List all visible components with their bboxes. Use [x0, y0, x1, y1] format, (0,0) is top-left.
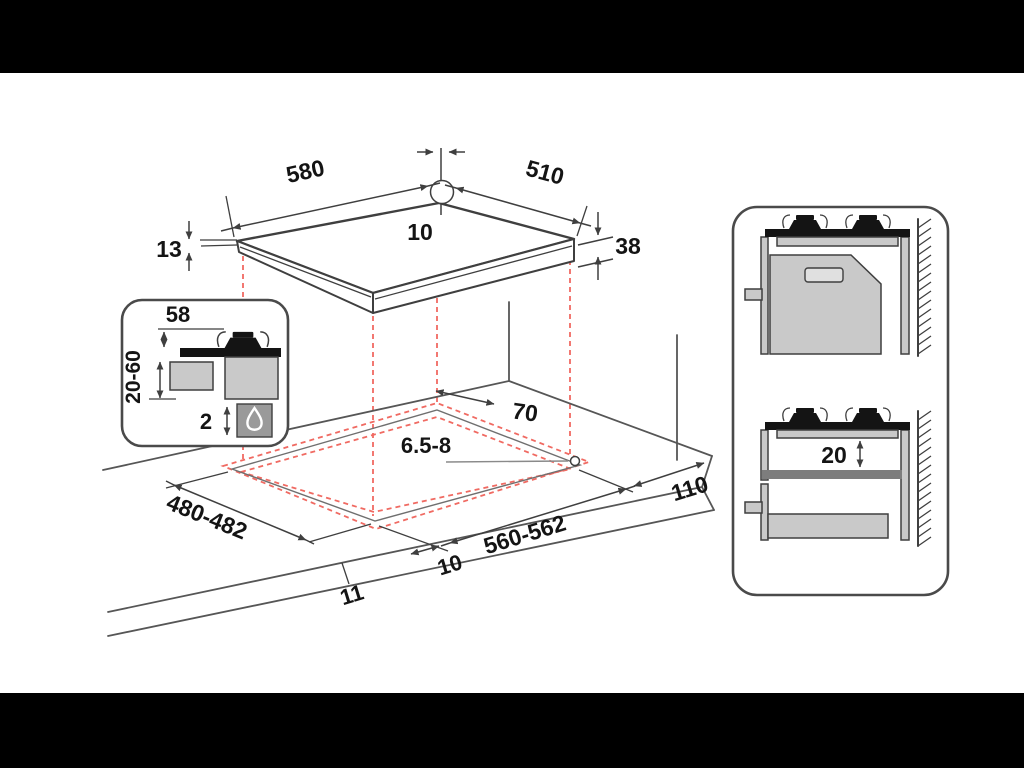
drawer-box [768, 514, 888, 538]
vent-slot [805, 268, 843, 282]
hob-on-worktop-side-view [745, 215, 931, 356]
dim-label-bottom-clearance: 2 [200, 409, 212, 434]
worktop-glass-section [180, 348, 281, 357]
dim-label-rear-clearance: 70 [511, 397, 540, 426]
shelf-board [762, 470, 902, 479]
letterbox-top-bar [0, 0, 1024, 73]
side-view-panel: 20 [733, 207, 948, 595]
cabinet-front-section [170, 362, 213, 390]
burner-section-inset: 58 20-60 2 [122, 300, 288, 446]
dim-label-burner-height: 58 [166, 302, 190, 327]
dim-label-hole-diameter: 6.5-8 [401, 433, 451, 458]
hob-shelf-clearance-side-view: 20 [745, 408, 931, 546]
screenshot-root: 70 6.5-8 480-482 560-562 110 10 11 [0, 0, 1024, 768]
installation-diagram: 70 6.5-8 480-482 560-562 110 10 11 [0, 0, 1024, 768]
dim-label-worktop-thickness: 20-60 [122, 350, 145, 404]
gas-inlet-stub [745, 502, 762, 513]
dim-label-rim-thickness: 13 [156, 236, 182, 262]
dim-label-total-height: 38 [615, 233, 641, 259]
letterbox-bottom-bar [0, 693, 1024, 768]
dim-label-hole-offset: 10 [407, 219, 433, 245]
burner-body-section [225, 357, 278, 399]
fixing-hole-marker [571, 457, 580, 466]
hob-glass-side [765, 422, 910, 430]
gas-inlet-stub [745, 289, 762, 300]
hob-glass-side [765, 229, 910, 237]
dim-label-gap-below-hob: 20 [821, 442, 847, 468]
